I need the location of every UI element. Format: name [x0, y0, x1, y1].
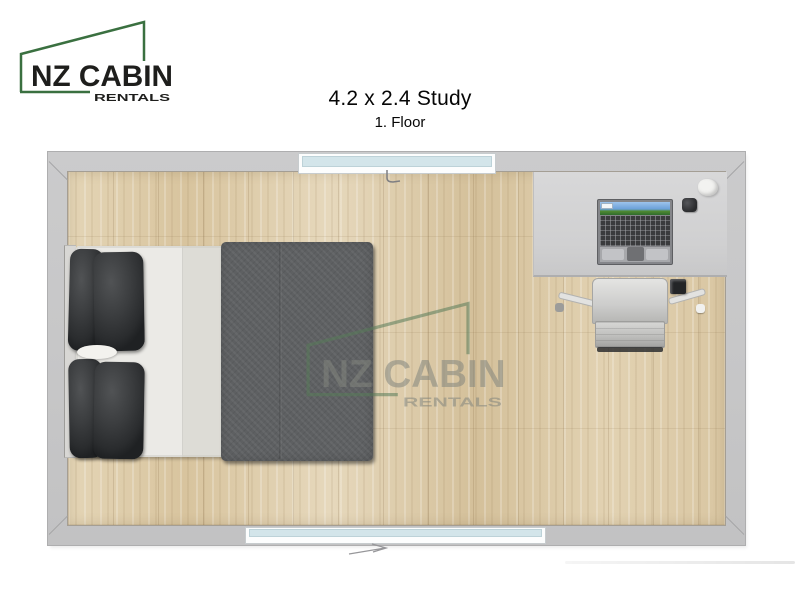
page-title: 4.2 x 2.4 Study [0, 87, 800, 111]
window-bottom [245, 527, 546, 544]
laptop-screen-window [601, 203, 613, 209]
office-chair-backrest [592, 278, 668, 324]
laptop [597, 199, 673, 265]
wall-corner-miter [49, 516, 68, 535]
desk-decor [698, 179, 718, 196]
plan-header: 4.2 x 2.4 Study 1. Floor [0, 87, 800, 131]
laptop-keyboard [600, 216, 670, 246]
laptop-palm-right [646, 249, 668, 260]
pillow [93, 252, 145, 352]
chair-armrest-tip-left [555, 303, 564, 312]
chair-armrest-tip-right [696, 304, 705, 313]
computer-mouse [682, 198, 697, 212]
wall-corner-miter [725, 161, 744, 180]
window-latch-icon [384, 170, 404, 186]
drop-shadow [565, 561, 795, 564]
duvet-fold [279, 244, 282, 459]
floor-label: 1. Floor [0, 114, 800, 131]
sheet-fold [77, 345, 117, 359]
laptop-palm-left [602, 249, 624, 260]
desk-phone [670, 279, 686, 294]
wall-corner-miter [49, 161, 68, 180]
mattress-sheet-shade [183, 246, 222, 457]
office-chair-seat [595, 321, 665, 348]
pillow [93, 362, 145, 460]
window-glass [302, 156, 492, 167]
laptop-screen [600, 202, 670, 215]
laptop-trackpad [627, 247, 644, 261]
floor-plan [48, 152, 745, 545]
window-glass [249, 529, 542, 537]
office-chair-shadow [597, 347, 663, 352]
wall-corner-miter [725, 516, 744, 535]
laptop-palmrest [600, 247, 670, 262]
page: NZ CABIN RENTALS 4.2 x 2.4 Study 1. Floo… [0, 0, 800, 600]
entry-arrow-icon [348, 543, 392, 559]
bed-duvet [221, 242, 373, 461]
